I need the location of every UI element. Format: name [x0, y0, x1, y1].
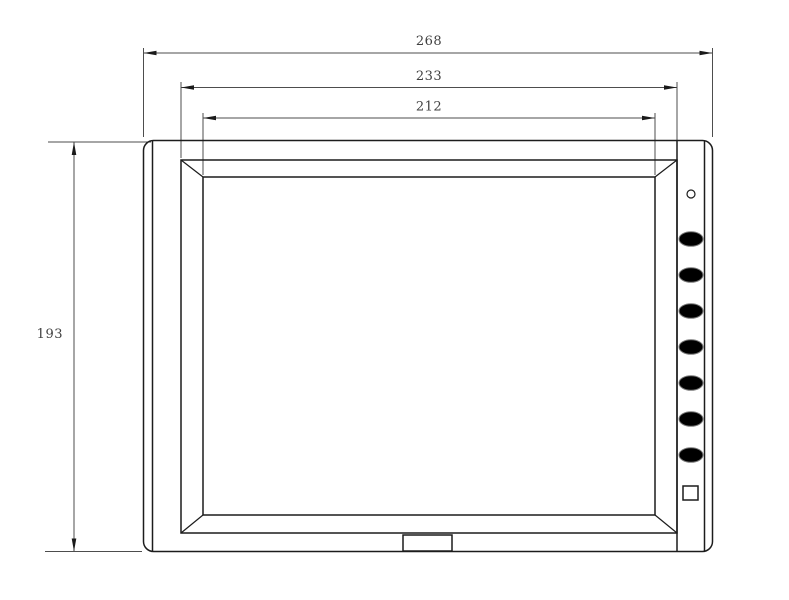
- dim-overall-width-label: 268: [416, 34, 442, 49]
- arrowhead-right-icon: [664, 85, 677, 90]
- bevel-line-top-right: [655, 160, 677, 177]
- bevel-line-top-left: [181, 160, 203, 177]
- control-button-7: [679, 448, 703, 463]
- control-button-6: [679, 412, 703, 427]
- arrowhead-right-icon: [700, 51, 713, 56]
- control-button-3: [679, 304, 703, 319]
- label-plate: [403, 535, 452, 551]
- monitor: [144, 141, 713, 552]
- screen-opening: [203, 177, 655, 515]
- dim-screen-width-label: 212: [416, 100, 442, 115]
- bezel-frame-outline: [181, 160, 677, 533]
- drawing-canvas: 268 233 212 193: [0, 0, 789, 600]
- control-panel: [679, 190, 703, 500]
- control-button-4: [679, 340, 703, 355]
- control-button-2: [679, 268, 703, 283]
- power-led-icon: [687, 190, 695, 198]
- arrowhead-right-icon: [642, 116, 655, 121]
- dim-screen-width: 212: [203, 100, 655, 176]
- bevel-line-bottom-left: [181, 515, 203, 533]
- square-button: [683, 486, 698, 500]
- arrowhead-down-icon: [72, 539, 77, 552]
- dim-overall-height-label: 193: [37, 327, 63, 342]
- arrowhead-up-icon: [72, 142, 77, 155]
- arrowhead-left-icon: [203, 116, 216, 121]
- dim-overall-width: 268: [144, 34, 713, 137]
- monitor-body-outline: [144, 141, 713, 552]
- arrowhead-left-icon: [144, 51, 157, 56]
- dim-overall-height: 193: [37, 142, 151, 552]
- dim-frame-width-label: 233: [416, 69, 442, 84]
- arrowhead-left-icon: [181, 85, 194, 90]
- bevel-line-bottom-right: [655, 515, 677, 533]
- control-button-1: [679, 232, 703, 247]
- technical-drawing: 268 233 212 193: [0, 0, 789, 600]
- control-button-5: [679, 376, 703, 391]
